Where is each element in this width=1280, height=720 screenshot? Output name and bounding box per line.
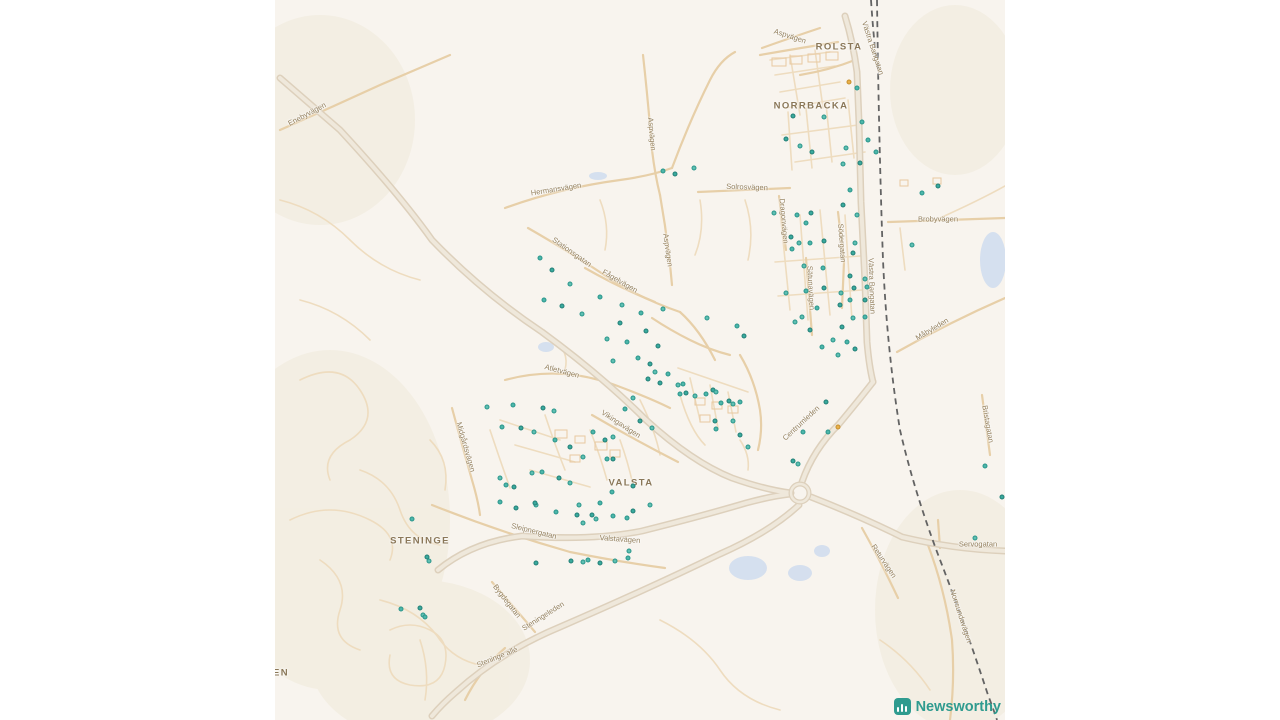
landuse-patches [275, 5, 1005, 720]
data-point-marker[interactable] [639, 311, 644, 316]
data-point-marker[interactable] [822, 239, 827, 244]
data-point-marker[interactable] [865, 285, 870, 290]
data-point-marker[interactable] [836, 353, 841, 358]
data-point-marker[interactable] [530, 471, 535, 476]
data-point-marker[interactable] [605, 457, 610, 462]
data-point-marker[interactable] [731, 402, 736, 407]
data-point-marker[interactable] [399, 607, 404, 612]
data-point-marker[interactable] [661, 307, 666, 312]
data-point-marker[interactable] [801, 430, 806, 435]
data-point-marker[interactable] [554, 510, 559, 515]
data-point-marker[interactable] [789, 235, 794, 240]
data-point-marker[interactable] [512, 485, 517, 490]
map-canvas[interactable]: AspvägenVästra BangatanEnebyvägenHermans… [275, 0, 1005, 720]
map-roads-layer [275, 0, 1005, 720]
data-point-marker[interactable] [820, 345, 825, 350]
data-point-marker[interactable] [658, 381, 663, 386]
data-point-marker[interactable] [540, 470, 545, 475]
data-point-marker[interactable] [853, 347, 858, 352]
data-point-marker[interactable] [791, 114, 796, 119]
data-point-marker[interactable] [620, 303, 625, 308]
data-point-marker[interactable] [798, 144, 803, 149]
data-point-marker[interactable] [626, 556, 631, 561]
data-point-marker[interactable] [839, 291, 844, 296]
data-point-marker[interactable] [852, 286, 857, 291]
data-point-marker[interactable] [784, 291, 789, 296]
data-point-marker[interactable] [498, 500, 503, 505]
newsworthy-logo-icon [894, 698, 911, 715]
data-point-marker[interactable] [848, 188, 853, 193]
data-point-marker[interactable] [581, 521, 586, 526]
data-point-marker-orange[interactable] [836, 425, 841, 430]
data-point-marker[interactable] [418, 606, 423, 611]
data-point-marker[interactable] [532, 430, 537, 435]
data-point-marker[interactable] [533, 501, 538, 506]
data-point-marker[interactable] [838, 303, 843, 308]
data-point-marker[interactable] [822, 286, 827, 291]
newsworthy-attribution[interactable]: Newsworthy [894, 698, 1001, 715]
data-point-marker[interactable] [631, 509, 636, 514]
data-point-marker[interactable] [804, 221, 809, 226]
data-point-marker[interactable] [591, 430, 596, 435]
data-point-marker[interactable] [575, 513, 580, 518]
data-point-marker[interactable] [553, 438, 558, 443]
data-point-marker[interactable] [860, 120, 865, 125]
data-point-marker[interactable] [504, 483, 509, 488]
data-point-marker[interactable] [631, 396, 636, 401]
data-point-marker[interactable] [874, 150, 879, 155]
data-point-marker[interactable] [841, 162, 846, 167]
data-point-marker[interactable] [519, 426, 524, 431]
data-point-marker[interactable] [826, 430, 831, 435]
data-point-marker[interactable] [638, 419, 643, 424]
data-point-marker[interactable] [594, 517, 599, 522]
data-point-marker[interactable] [611, 514, 616, 519]
data-point-marker[interactable] [627, 549, 632, 554]
data-point-marker[interactable] [772, 211, 777, 216]
data-point-marker[interactable] [623, 407, 628, 412]
data-point-marker[interactable] [821, 266, 826, 271]
data-point-marker[interactable] [613, 559, 618, 564]
data-point-marker[interactable] [552, 409, 557, 414]
data-point-marker[interactable] [410, 517, 415, 522]
data-point-marker[interactable] [866, 138, 871, 143]
data-point-marker[interactable] [610, 490, 615, 495]
data-point-marker[interactable] [746, 445, 751, 450]
data-point-marker[interactable] [603, 438, 608, 443]
data-point-marker[interactable] [684, 391, 689, 396]
data-point-marker[interactable] [735, 324, 740, 329]
data-point-marker[interactable] [793, 320, 798, 325]
data-point-marker[interactable] [568, 445, 573, 450]
data-point-marker[interactable] [983, 464, 988, 469]
data-point-marker[interactable] [704, 392, 709, 397]
data-point-marker[interactable] [851, 251, 856, 256]
data-point-marker[interactable] [656, 344, 661, 349]
data-point-marker[interactable] [427, 559, 432, 564]
data-point-marker[interactable] [920, 191, 925, 196]
data-point-marker[interactable] [714, 427, 719, 432]
data-point-marker[interactable] [485, 405, 490, 410]
data-point-marker[interactable] [542, 298, 547, 303]
data-point-marker[interactable] [797, 241, 802, 246]
data-point-marker[interactable] [648, 503, 653, 508]
data-point-marker[interactable] [611, 435, 616, 440]
data-point-marker[interactable] [973, 536, 978, 541]
data-point-marker[interactable] [910, 243, 915, 248]
page: { "map": { "background_color": "#f8f4ee"… [0, 0, 1280, 720]
data-point-marker[interactable] [851, 316, 856, 321]
data-point-marker[interactable] [738, 433, 743, 438]
data-point-marker[interactable] [705, 316, 710, 321]
data-point-marker[interactable] [1000, 495, 1005, 500]
data-point-marker[interactable] [713, 419, 718, 424]
data-point-marker[interactable] [714, 390, 719, 395]
data-point-marker[interactable] [790, 247, 795, 252]
data-point-marker[interactable] [808, 328, 813, 333]
data-point-marker[interactable] [577, 503, 582, 508]
data-point-marker[interactable] [863, 315, 868, 320]
data-point-marker[interactable] [800, 315, 805, 320]
data-point-marker[interactable] [808, 241, 813, 246]
data-point-marker[interactable] [863, 298, 868, 303]
data-point-marker[interactable] [598, 561, 603, 566]
data-point-marker[interactable] [611, 457, 616, 462]
data-point-marker[interactable] [618, 321, 623, 326]
data-point-marker[interactable] [646, 377, 651, 382]
data-point-marker[interactable] [581, 455, 586, 460]
data-point-marker[interactable] [500, 425, 505, 430]
data-point-marker[interactable] [541, 406, 546, 411]
newsworthy-brand-text: Newsworthy [916, 699, 1001, 715]
data-point-marker[interactable] [653, 370, 658, 375]
data-point-marker[interactable] [423, 615, 428, 620]
data-point-marker[interactable] [666, 372, 671, 377]
data-point-marker[interactable] [863, 277, 868, 282]
data-point-marker[interactable] [648, 362, 653, 367]
data-point-marker[interactable] [784, 137, 789, 142]
data-point-marker[interactable] [795, 213, 800, 218]
data-point-marker[interactable] [804, 289, 809, 294]
data-point-marker[interactable] [693, 394, 698, 399]
data-point-marker[interactable] [673, 172, 678, 177]
data-point-marker[interactable] [568, 282, 573, 287]
data-point-marker[interactable] [858, 161, 863, 166]
data-point-marker[interactable] [598, 501, 603, 506]
data-point-marker[interactable] [840, 325, 845, 330]
data-point-marker[interactable] [815, 306, 820, 311]
data-point-marker[interactable] [590, 513, 595, 518]
data-point-marker[interactable] [661, 169, 666, 174]
data-point-marker[interactable] [824, 400, 829, 405]
data-point-marker[interactable] [605, 337, 610, 342]
data-point-marker[interactable] [514, 506, 519, 511]
data-point-marker[interactable] [802, 264, 807, 269]
data-point-marker[interactable] [841, 203, 846, 208]
data-point-marker[interactable] [731, 419, 736, 424]
data-point-marker[interactable] [936, 184, 941, 189]
data-point-marker[interactable] [636, 356, 641, 361]
data-point-marker[interactable] [742, 334, 747, 339]
data-point-marker[interactable] [511, 403, 516, 408]
data-point-marker[interactable] [845, 340, 850, 345]
data-point-marker[interactable] [848, 298, 853, 303]
data-point-marker[interactable] [719, 401, 724, 406]
data-point-marker[interactable] [831, 338, 836, 343]
data-point-marker[interactable] [855, 213, 860, 218]
data-point-marker[interactable] [844, 146, 849, 151]
data-point-marker[interactable] [650, 426, 655, 431]
data-point-marker[interactable] [681, 382, 686, 387]
data-point-marker[interactable] [848, 274, 853, 279]
data-point-marker[interactable] [738, 400, 743, 405]
data-point-marker[interactable] [598, 295, 603, 300]
data-point-marker[interactable] [625, 340, 630, 345]
data-point-marker[interactable] [810, 150, 815, 155]
data-point-marker[interactable] [611, 359, 616, 364]
data-point-marker-orange[interactable] [847, 80, 852, 85]
data-point-marker[interactable] [557, 476, 562, 481]
data-point-marker[interactable] [498, 476, 503, 481]
data-point-marker[interactable] [822, 115, 827, 120]
data-point-marker[interactable] [550, 268, 555, 273]
data-point-marker[interactable] [538, 256, 543, 261]
data-point-marker[interactable] [568, 481, 573, 486]
data-point-marker[interactable] [625, 516, 630, 521]
data-point-marker[interactable] [678, 392, 683, 397]
data-point-marker[interactable] [855, 86, 860, 91]
data-point-marker[interactable] [644, 329, 649, 334]
data-point-marker[interactable] [631, 484, 636, 489]
data-point-marker[interactable] [580, 312, 585, 317]
data-point-marker[interactable] [692, 166, 697, 171]
data-point-marker[interactable] [809, 211, 814, 216]
data-point-marker[interactable] [796, 462, 801, 467]
data-point-marker[interactable] [853, 241, 858, 246]
data-point-marker[interactable] [534, 561, 539, 566]
data-point-marker[interactable] [676, 383, 681, 388]
data-point-marker[interactable] [586, 558, 591, 563]
data-point-marker[interactable] [560, 304, 565, 309]
data-point-marker[interactable] [569, 559, 574, 564]
